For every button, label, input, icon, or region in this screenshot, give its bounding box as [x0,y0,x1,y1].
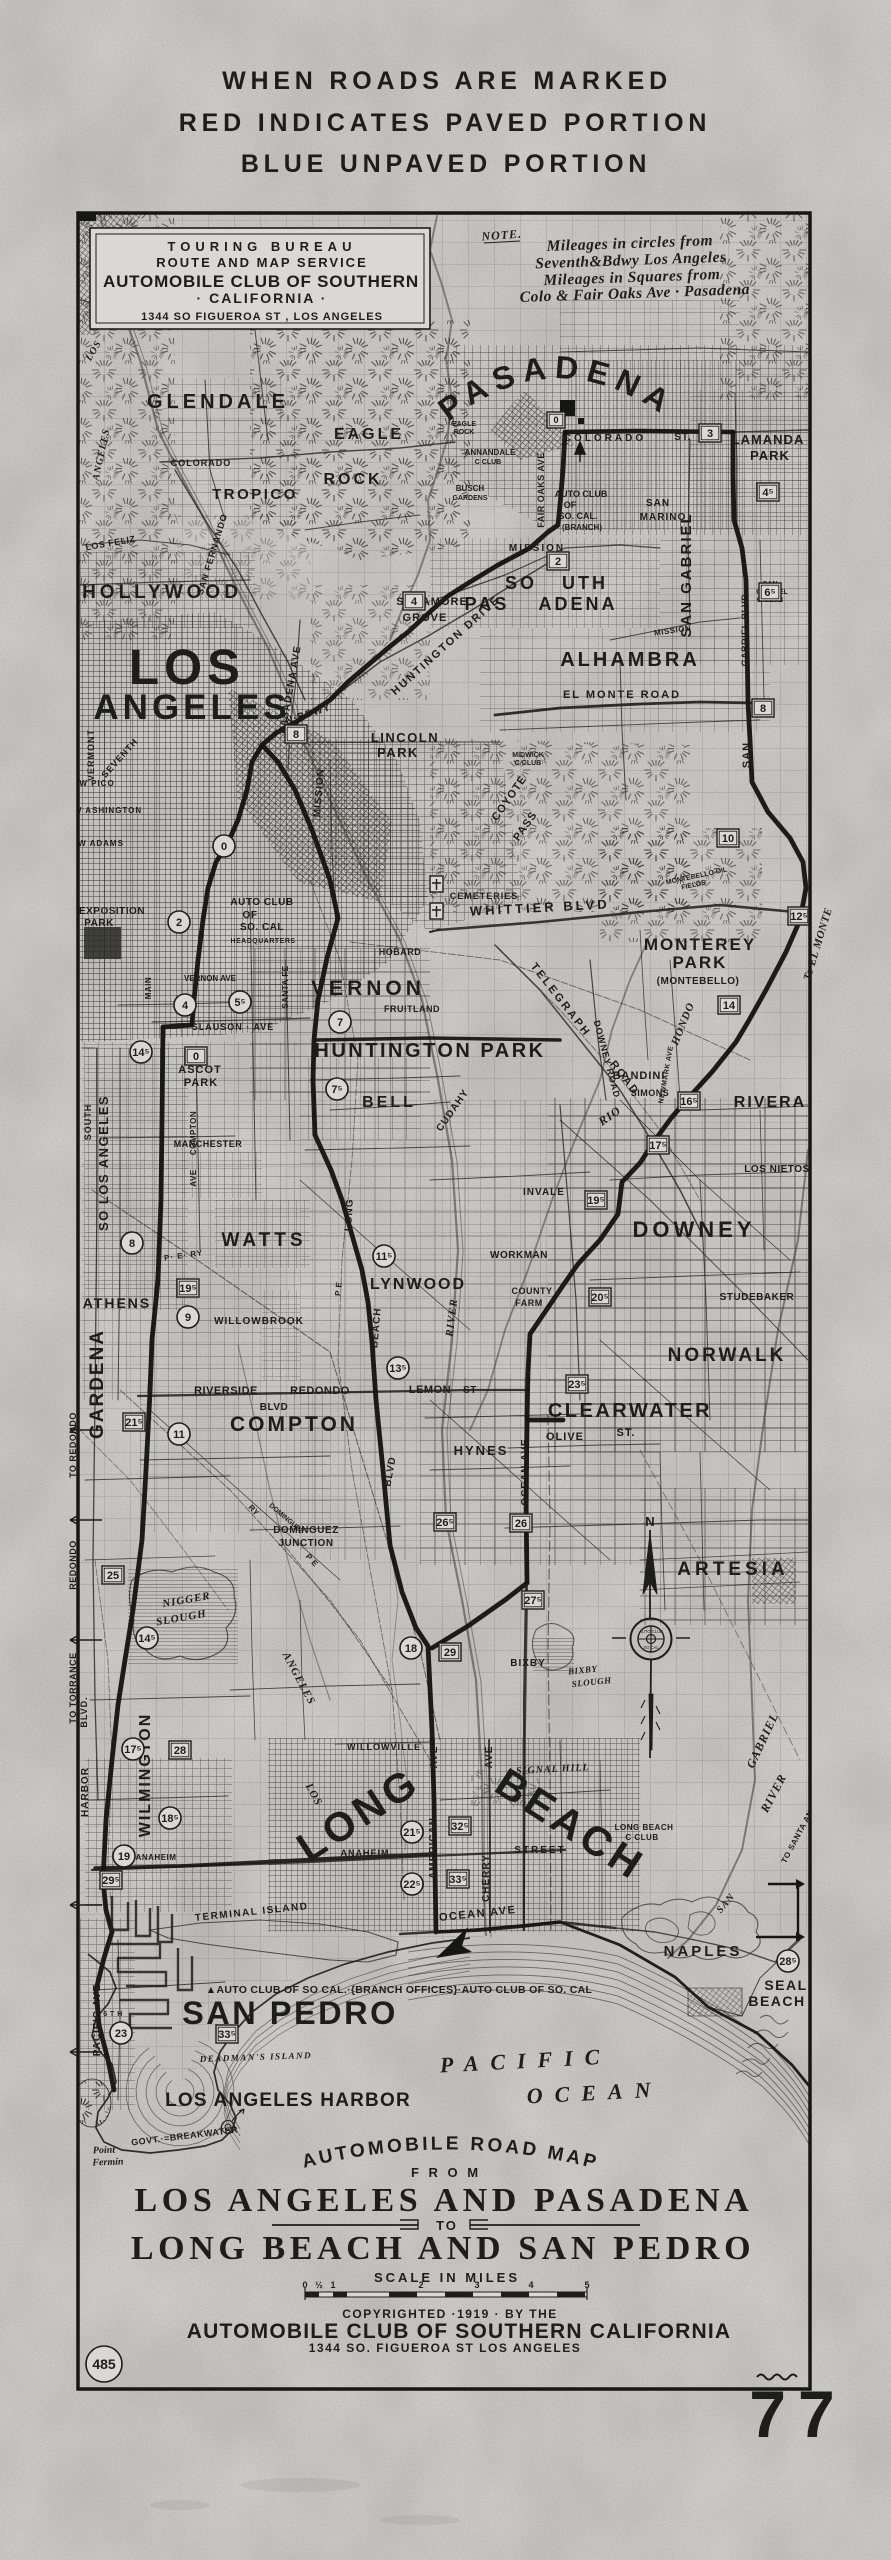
svg-text:SO: SO [505,573,537,593]
svg-text:C CLUB: C CLUB [515,760,541,767]
svg-text:LYNWOOD: LYNWOOD [370,1276,466,1293]
svg-text:MANCHESTER: MANCHESTER [174,1139,243,1149]
svg-text:MAIN: MAIN [144,977,153,999]
svg-text:BIXBY: BIXBY [510,1658,546,1669]
svg-text:SAN: SAN [646,498,670,509]
svg-text:4: 4 [182,1000,189,1012]
svg-text:W ADAMS: W ADAMS [78,839,124,848]
svg-text:OF: OF [564,500,577,510]
svg-text:SCALE IN MILES: SCALE IN MILES [374,2270,520,2285]
svg-text:OLIVE: OLIVE [546,1431,584,1443]
svg-text:25: 25 [107,1570,119,1582]
svg-text:HYNES: HYNES [454,1443,509,1458]
svg-text:COMPTON: COMPTON [189,1111,198,1155]
svg-text:W PICO: W PICO [79,779,114,788]
svg-text:GARDENA: GARDENA [87,1329,108,1439]
svg-text:AUTO CLUB: AUTO CLUB [230,897,293,908]
svg-text:SAN PEDRO: SAN PEDRO [182,1995,398,2031]
svg-text:1: 1 [330,2280,335,2290]
svg-text:SO. CAL: SO. CAL [240,922,284,933]
svg-text:BLUE UNPAVED PORTION: BLUE UNPAVED PORTION [241,150,651,178]
svg-text:REDONDO: REDONDO [68,1540,78,1590]
svg-text:MIDWICK: MIDWICK [512,752,544,759]
svg-text:33⁵: 33⁵ [449,1874,466,1886]
svg-text:0: 0 [221,841,227,853]
svg-text:1344 SO. FIGUEROA ST L: 1344 SO. FIGUEROA ST LOS ANGELES [309,2341,582,2355]
svg-text:0: 0 [302,2280,307,2290]
svg-text:ANNANDALE: ANNANDALE [465,448,516,457]
svg-text:SAN GABRIEL: SAN GABRIEL [678,512,695,637]
svg-text:FRUITLAND: FRUITLAND [384,1004,440,1014]
svg-text:WHEN ROADS ARE MARKED: WHEN ROADS ARE MARKED [222,67,672,95]
svg-text:ROCK: ROCK [323,471,382,488]
svg-text:ROCK: ROCK [454,429,475,436]
svg-text:WORKMAN: WORKMAN [490,1250,548,1261]
svg-text:ST.: ST. [674,432,691,443]
svg-text:3: 3 [474,2280,479,2290]
svg-text:LEMON: LEMON [409,1384,451,1396]
svg-text:½: ½ [315,2280,323,2290]
svg-text:26⁵: 26⁵ [436,1517,453,1529]
svg-text:RIVERA: RIVERA [734,1094,806,1111]
svg-text:P E: P E [333,1281,343,1296]
svg-text:BLVD: BLVD [260,1402,288,1413]
svg-text:SLAUSON · AVE: SLAUSON · AVE [192,1022,275,1032]
svg-text:AMERICAN: AMERICAN [428,1817,439,1879]
svg-text:DOWNEY: DOWNEY [633,1217,756,1242]
svg-text:11: 11 [173,1429,185,1441]
svg-text:16⁵: 16⁵ [680,1096,697,1108]
svg-text:ANGELES: ANGELES [93,688,290,727]
svg-text:LAMANDA: LAMANDA [732,432,805,447]
svg-text:8: 8 [760,703,766,715]
svg-text:17⁵: 17⁵ [649,1140,666,1152]
svg-text:ST: ST [463,1385,477,1396]
svg-text:0: 0 [553,415,558,425]
svg-text:OCEAN AVE: OCEAN AVE [520,1438,531,1505]
svg-text:21⁵: 21⁵ [403,1827,420,1839]
svg-text:28⁵: 28⁵ [779,1956,796,1968]
svg-text:13⁵: 13⁵ [389,1363,406,1375]
svg-text:ANAHEIM: ANAHEIM [341,1848,390,1858]
svg-text:LONG: LONG [343,1198,356,1231]
svg-text:BELL: BELL [362,1094,416,1111]
svg-text:AVE: AVE [429,1746,440,1769]
svg-text:17⁵: 17⁵ [124,1744,141,1756]
svg-text:· CALIFORNIA ·: · CALIFORNIA · [197,290,328,306]
svg-text:29⁵: 29⁵ [102,1875,119,1887]
svg-text:4: 4 [528,2280,533,2290]
svg-text:W ASHINGTON: W ASHINGTON [74,806,142,815]
svg-text:UTH: UTH [562,573,608,593]
svg-text:F R O M: F R O M [411,2165,481,2180]
svg-text:6⁵: 6⁵ [764,587,775,599]
svg-text:FARM: FARM [515,1298,543,1308]
svg-text:22⁵: 22⁵ [403,1879,420,1891]
svg-text:3: 3 [707,428,713,440]
svg-text:TO TORRANCE: TO TORRANCE [68,1652,78,1723]
svg-text:ST.: ST. [617,1427,636,1439]
svg-text:7⁵: 7⁵ [331,1084,342,1096]
svg-text:BANDINI: BANDINI [613,1070,666,1082]
svg-text:ARTESIA: ARTESIA [677,1559,788,1580]
svg-text:Fermin: Fermin [91,2156,124,2168]
svg-text:BEACH: BEACH [748,1993,805,2009]
svg-text:C CLUB: C CLUB [625,1833,658,1842]
svg-text:C CLUB: C CLUB [475,459,501,466]
svg-text:INVALE: INVALE [523,1187,565,1198]
svg-text:HEADQUARTERS: HEADQUARTERS [230,938,295,945]
svg-text:9: 9 [185,1312,191,1324]
svg-text:LOS ANGELES HARBOR: LOS ANGELES HARBOR [165,2090,411,2111]
svg-text:TROPICO: TROPICO [212,486,298,503]
svg-text:AUTOMOBILE CLUB OF SOUTHERN: AUTOMOBILE CLUB OF SOUTHERN CALIFORNIA [187,2320,732,2343]
svg-text:SEAL: SEAL [764,1977,807,1993]
svg-text:29: 29 [444,1647,456,1659]
svg-text:AUTOMOBILE CLUB OF SOUTHERN: AUTOMOBILE CLUB OF SOUTHERN [103,272,419,291]
svg-text:VERMONT: VERMONT [86,729,96,781]
svg-text:BUSCH: BUSCH [456,484,485,493]
svg-text:EXPOSITION: EXPOSITION [79,906,145,917]
svg-text:TO REDONDO: TO REDONDO [68,1412,78,1478]
svg-text:14⁵: 14⁵ [132,1047,149,1059]
svg-text:23⁵: 23⁵ [568,1379,585,1391]
svg-text:SANTA FE: SANTA FE [281,965,290,1008]
svg-text:NORWALK: NORWALK [668,1345,787,1366]
svg-text:PARK: PARK [184,1077,218,1089]
svg-text:5⁵: 5⁵ [234,997,245,1009]
svg-text:LOS ANGELES AND PASADENA: LOS ANGELES AND PASADENA [135,2182,754,2219]
svg-text:20⁵: 20⁵ [591,1292,608,1304]
svg-text:FAIR OAKS AVE: FAIR OAKS AVE [536,452,546,528]
svg-text:DOMINGUEZ: DOMINGUEZ [273,1525,339,1536]
svg-text:2: 2 [555,556,561,568]
svg-text:WILMINGTON: WILMINGTON [137,1713,154,1838]
svg-text:TOURING BUREAU: TOURING BUREAU [168,239,357,254]
svg-text:5: 5 [584,2280,589,2290]
svg-text:BLVD.: BLVD. [79,1696,89,1727]
svg-text:0: 0 [193,1051,199,1063]
svg-text:COLORADO: COLORADO [171,458,232,468]
svg-text:28: 28 [174,1745,186,1757]
svg-text:SO LOS ANGELES: SO LOS ANGELES [96,1095,111,1231]
svg-text:AUTO CLUB: AUTO CLUB [639,1629,663,1634]
svg-text:LOS NIETOS: LOS NIETOS [744,1164,809,1175]
svg-text:11⁵: 11⁵ [376,1251,393,1263]
svg-text:REDONDO: REDONDO [290,1385,350,1397]
svg-text:STUDEBAKER: STUDEBAKER [720,1292,795,1303]
svg-text:19: 19 [118,1851,130,1863]
svg-text:485: 485 [92,2356,116,2372]
svg-text:SOUTH: SOUTH [83,1104,93,1141]
svg-text:2: 2 [418,2280,423,2290]
svg-text:EL MONTE ROAD: EL MONTE ROAD [563,689,681,701]
svg-text:SAN: SAN [741,742,753,768]
svg-text:VERNON AVE: VERNON AVE [184,974,237,983]
svg-text:CEMETERIES: CEMETERIES [450,891,519,901]
svg-text:8: 8 [129,1238,135,1250]
svg-text:21⁵: 21⁵ [125,1417,142,1429]
svg-text:(BRANCH): (BRANCH) [562,523,602,532]
svg-text:14⁵: 14⁵ [138,1633,155,1645]
svg-text:SO. CAL.: SO. CAL. [558,511,597,521]
svg-text:26: 26 [515,1518,527,1530]
svg-text:10: 10 [722,833,734,845]
svg-text:19⁵: 19⁵ [587,1195,604,1207]
svg-text:COUNTY: COUNTY [512,1286,553,1296]
svg-text:LINCOLN: LINCOLN [371,730,439,745]
svg-text:6 T H: 6 T H [103,2011,123,2018]
svg-text:SO CAL: SO CAL [643,1645,659,1650]
svg-text:WILLOWVILLE: WILLOWVILLE [347,1742,421,1752]
svg-text:RED INDICATES PAVED PORTION: RED INDICATES PAVED PORTION [179,109,711,137]
svg-text:HARBOR: HARBOR [80,1767,91,1817]
svg-text:EAGLE: EAGLE [334,426,404,443]
svg-text:18: 18 [405,1643,417,1655]
svg-text:PARK: PARK [750,448,790,463]
svg-text:COMPTON: COMPTON [230,1413,358,1436]
svg-text:4⁵: 4⁵ [762,487,773,499]
svg-text:COLORADO: COLORADO [564,433,646,444]
svg-text:8: 8 [293,729,299,741]
svg-text:AVE: AVE [189,1169,198,1187]
svg-text:ADENA: ADENA [538,594,617,614]
svg-text:N: N [645,1514,654,1529]
svg-text:23: 23 [115,2028,127,2040]
svg-text:27⁵: 27⁵ [524,1595,541,1607]
svg-text:MONTEREY: MONTEREY [644,935,756,954]
svg-text:12⁵: 12⁵ [790,911,807,923]
svg-text:RIVERSIDE: RIVERSIDE [194,1385,258,1397]
svg-text:HOLLYWOOD: HOLLYWOOD [82,582,242,603]
svg-text:COPYRIGHTED ·1919 · BY THE: COPYRIGHTED ·1919 · BY THE [342,2307,557,2321]
svg-text:GABRIEL BLVD: GABRIEL BLVD [740,594,750,667]
svg-text:LONG BEACH: LONG BEACH [615,1823,674,1832]
svg-text:7: 7 [337,1017,343,1029]
svg-text:PACIFIC AVE: PACIFIC AVE [92,1984,103,2056]
svg-text:NAPLES: NAPLES [664,1943,743,1960]
svg-text:19⁵: 19⁵ [179,1283,196,1295]
svg-text:ASCOT: ASCOT [178,1064,222,1076]
svg-text:CLEARWATER: CLEARWATER [548,1400,712,1422]
svg-text:(MONTEBELLO): (MONTEBELLO) [657,976,740,987]
svg-text:ROUTE AND MAP SERVICE: ROUTE AND MAP SERVICE [156,255,368,270]
svg-text:▲AUTO CLUB OF SO CAL.·{BRANCH: ▲AUTO CLUB OF SO CAL.·{BRANCH OFFICES}·A… [206,1984,593,1996]
svg-text:14: 14 [723,1000,736,1012]
svg-text:18⁵: 18⁵ [161,1813,178,1825]
svg-text:PARK: PARK [673,953,728,972]
svg-text:LONG BEACH AND SAN PEDRO: LONG BEACH AND SAN PEDRO [131,2230,755,2267]
svg-text:ANAHEIM: ANAHEIM [136,1853,177,1862]
svg-text:OF: OF [243,910,258,921]
svg-text:GARDENS: GARDENS [452,495,487,502]
svg-text:32⁵: 32⁵ [451,1821,468,1833]
svg-text:MARINO: MARINO [640,512,687,523]
svg-text:GROVE: GROVE [403,612,448,624]
svg-text:ALHAMBRA: ALHAMBRA [560,649,700,671]
svg-text:2: 2 [176,917,182,929]
svg-text:33⁵: 33⁵ [218,2029,235,2041]
svg-text:HUNTINGTON PARK: HUNTINGTON PARK [314,1040,545,1062]
svg-text:4: 4 [411,596,418,608]
svg-text:AUTO CLUB: AUTO CLUB [555,489,608,499]
svg-text:WILLOWBROOK: WILLOWBROOK [214,1316,304,1327]
svg-text:Point: Point [93,2145,117,2157]
svg-text:HOBARD: HOBARD [379,947,422,957]
svg-text:AVE: AVE [484,1746,495,1769]
svg-text:77: 77 [749,2377,846,2451]
svg-text:EAGLE: EAGLE [452,421,476,428]
svg-text:1344 SO FIGUEROA ST , LOS ANG: 1344 SO FIGUEROA ST , LOS ANGELES [141,311,383,323]
svg-text:LOS: LOS [129,641,245,695]
svg-text:WATTS: WATTS [221,1230,306,1251]
svg-text:JUNCTION: JUNCTION [278,1538,333,1549]
svg-text:CHERRY: CHERRY [481,1854,492,1902]
svg-text:GLENDALE: GLENDALE [147,391,289,413]
svg-text:PARK: PARK [377,745,419,760]
svg-text:PARK: PARK [84,918,114,929]
svg-text:VERNON: VERNON [311,977,425,1000]
svg-text:STREET: STREET [514,1845,565,1856]
svg-text:ATHENS: ATHENS [83,1295,152,1311]
